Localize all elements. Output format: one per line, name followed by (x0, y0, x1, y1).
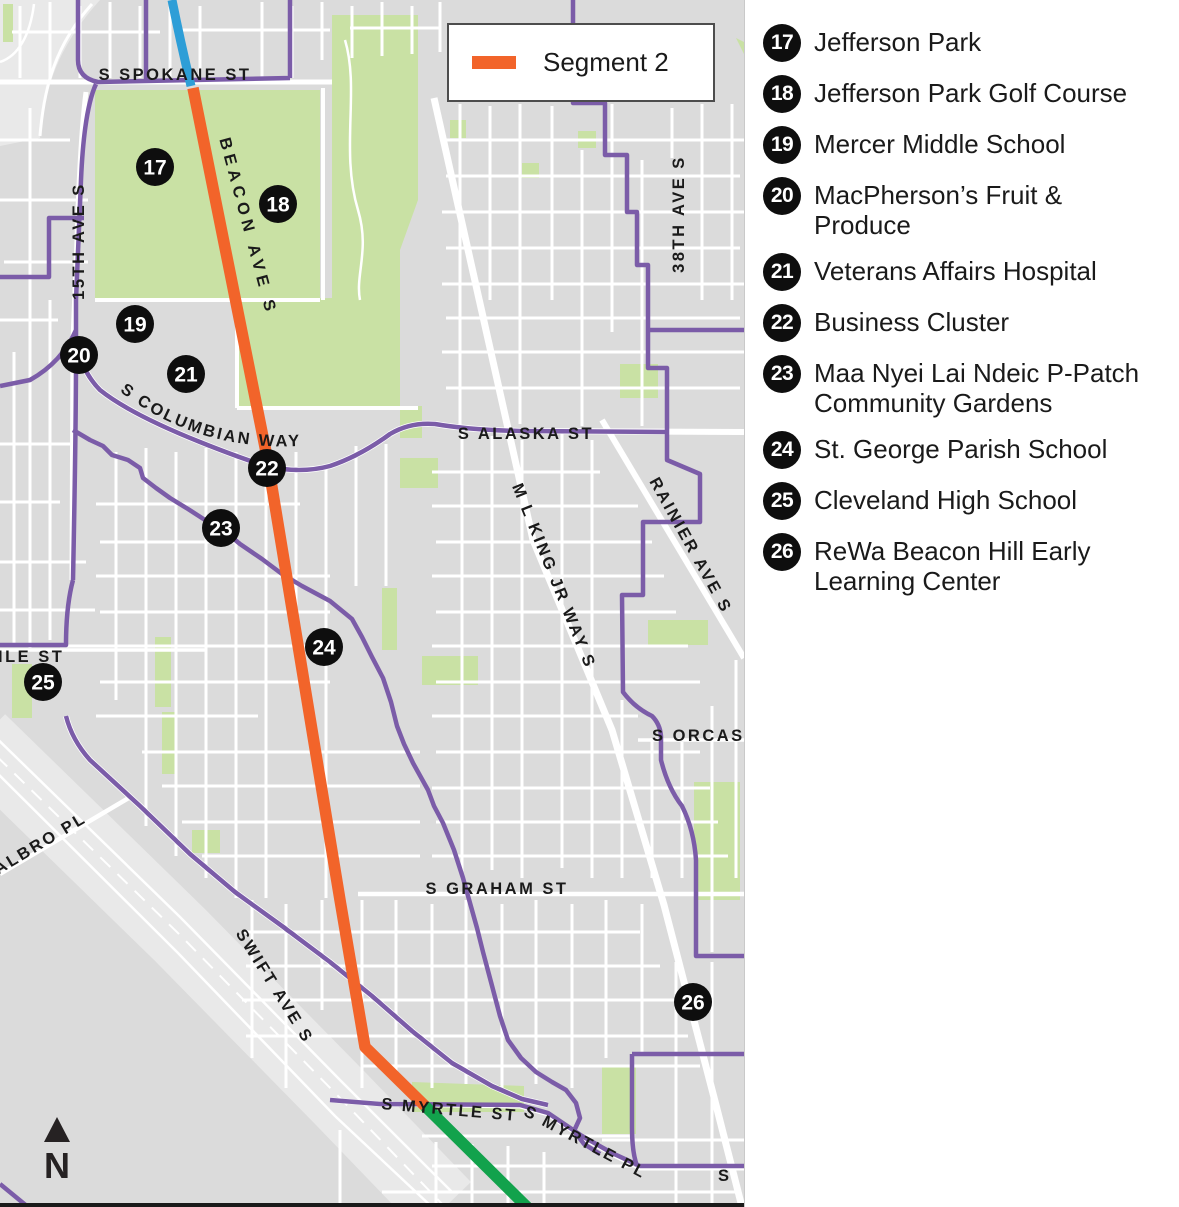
map-marker-23-number: 23 (209, 518, 232, 541)
page: S SPOKANE ST 15TH AVE S BEACON AVE S S C… (0, 0, 1179, 1207)
list-label: Mercer Middle School (814, 129, 1065, 159)
list-item: 22Business Cluster (763, 304, 1145, 342)
list-badge-23: 23 (763, 355, 801, 393)
list-item: 26ReWa Beacon Hill Early Learning Center (763, 533, 1145, 596)
list-badge-19: 19 (763, 126, 801, 164)
street-label-lucile: ILE ST (0, 648, 64, 666)
location-list: 17Jefferson Park 18Jefferson Park Golf C… (763, 24, 1145, 609)
map-marker-18-number: 18 (266, 194, 290, 217)
map-marker-19-number: 19 (123, 314, 146, 337)
list-badge-20: 20 (763, 177, 801, 215)
map-panel-divider (744, 0, 745, 1207)
list-badge-25: 25 (763, 482, 801, 520)
list-badge-24: 24 (763, 431, 801, 469)
list-label: Veterans Affairs Hospital (814, 256, 1097, 286)
map-marker-22: 22 (248, 449, 286, 487)
list-badge-21: 21 (763, 253, 801, 291)
street-label-38th-ave: 38TH AVE S (670, 155, 688, 273)
list-badge-18: 18 (763, 75, 801, 113)
list-badge-26: 26 (763, 533, 801, 571)
list-item: 17Jefferson Park (763, 24, 1145, 62)
list-label: ReWa Beacon Hill Early Learning Center (814, 536, 1145, 596)
list-label: St. George Parish School (814, 434, 1107, 464)
street-label-graham: S GRAHAM ST (426, 880, 569, 898)
map-marker-25: 25 (24, 663, 62, 701)
map-legend: Segment 2 (447, 23, 715, 102)
street-label-spokane: S SPOKANE ST (99, 66, 252, 84)
map-marker-24: 24 (305, 628, 343, 666)
map-marker-19: 19 (116, 305, 154, 343)
map-marker-18: 18 (259, 185, 297, 223)
list-label: Maa Nyei Lai Ndeic P-Patch Community Gar… (814, 358, 1145, 418)
legend-label: Segment 2 (543, 47, 669, 78)
map-border-bottom (0, 1203, 745, 1207)
map-marker-23: 23 (202, 509, 240, 547)
map-marker-17: 17 (136, 148, 174, 186)
map-marker-20: 20 (60, 336, 98, 374)
list-item: 23Maa Nyei Lai Ndeic P-Patch Community G… (763, 355, 1145, 418)
list-badge-17: 17 (763, 24, 801, 62)
list-item: 25Cleveland High School (763, 482, 1145, 520)
segment2-swatch (472, 56, 516, 69)
map: S SPOKANE ST 15TH AVE S BEACON AVE S S C… (0, 0, 745, 1207)
list-item: 20MacPherson’s Fruit & Produce (763, 177, 1145, 240)
list-item: 18Jefferson Park Golf Course (763, 75, 1145, 113)
list-label: Cleveland High School (814, 485, 1077, 515)
street-label-s-partial: S (718, 1167, 732, 1185)
map-marker-22-number: 22 (255, 458, 278, 481)
north-arrow-label: N (44, 1145, 70, 1186)
map-marker-25-number: 25 (31, 672, 55, 695)
street-label-15th-ave: 15TH AVE S (70, 182, 88, 300)
list-badge-22: 22 (763, 304, 801, 342)
list-label: Jefferson Park (814, 27, 981, 57)
map-marker-24-number: 24 (312, 637, 336, 660)
list-label: Jefferson Park Golf Course (814, 78, 1127, 108)
list-label: MacPherson’s Fruit & Produce (814, 180, 1145, 240)
map-marker-26-number: 26 (681, 992, 704, 1015)
street-label-orcas: S ORCAS (652, 727, 745, 745)
map-marker-21: 21 (167, 355, 205, 393)
street-label-alaska: S ALASKA ST (458, 425, 594, 443)
list-item: 24St. George Parish School (763, 431, 1145, 469)
map-marker-21-number: 21 (174, 364, 198, 387)
map-marker-26: 26 (674, 983, 712, 1021)
map-canvas: S SPOKANE ST 15TH AVE S BEACON AVE S S C… (0, 0, 745, 1207)
map-marker-20-number: 20 (67, 345, 90, 368)
list-item: 21Veterans Affairs Hospital (763, 253, 1145, 291)
map-marker-17-number: 17 (143, 157, 166, 180)
list-label: Business Cluster (814, 307, 1009, 337)
list-item: 19Mercer Middle School (763, 126, 1145, 164)
